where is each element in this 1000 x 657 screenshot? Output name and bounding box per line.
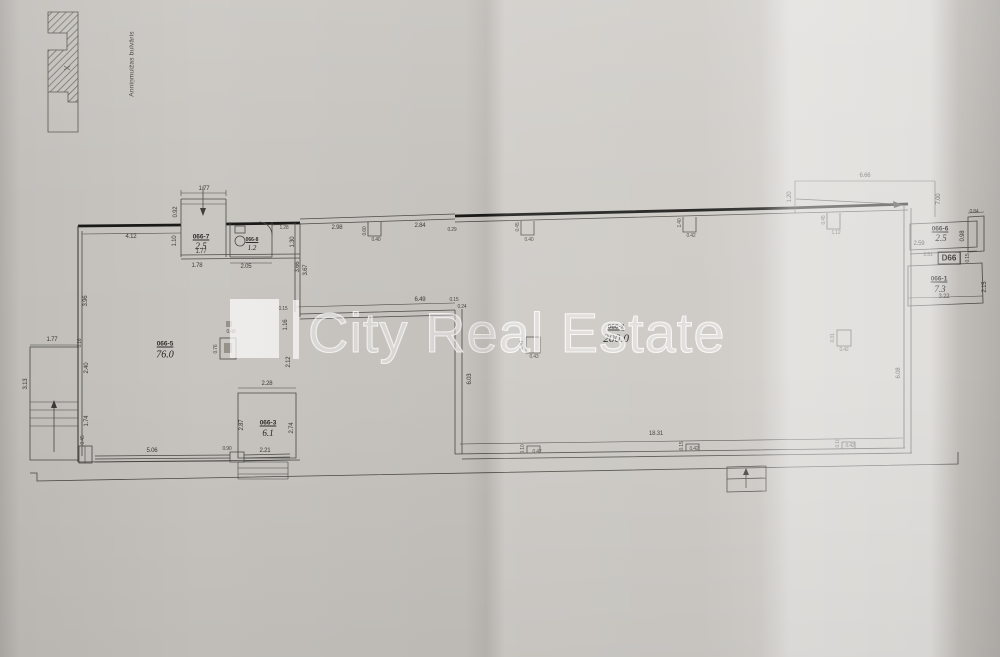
room-area-label: 7.3 <box>934 284 945 294</box>
dim-label: 1.40 <box>677 219 683 228</box>
dim-label: 0.42 <box>533 449 542 455</box>
street-name-label: Anniņmuižas bulvāris <box>129 31 136 96</box>
dim-label: 3.66 <box>295 262 301 273</box>
dim-label: 0.45 <box>515 223 521 232</box>
dim-label: 0.84 <box>970 209 979 215</box>
dim-label: 0.90 <box>223 446 232 452</box>
dim-label: 3.96 <box>83 296 89 307</box>
dim-label: 0.45 <box>80 436 86 445</box>
dim-label: 1.16 <box>283 320 289 331</box>
dim-label: 0.42 <box>846 443 855 449</box>
room-id-label: 066-7 <box>193 234 210 241</box>
dim-label: 0.60 <box>362 227 368 236</box>
dim-label: 1.20 <box>787 192 793 203</box>
dim-label: 0.15 <box>679 442 685 451</box>
room-area-label: 2.5 <box>935 233 946 243</box>
room-area-label: 1.2 <box>248 244 257 252</box>
wall-section-symbol <box>48 12 78 102</box>
dim-label: 0.10 <box>520 445 526 454</box>
dim-label: 2.15 <box>982 282 988 293</box>
dim-label: 2.84 <box>415 223 426 229</box>
dim-label: 1.10 <box>172 236 178 247</box>
dim-label: 5.06 <box>147 448 158 454</box>
dim-label: 6.66 <box>860 173 871 179</box>
watermark: City Real Estate <box>308 300 726 365</box>
dim-label: 1.78 <box>192 263 203 269</box>
dim-label: 18.31 <box>649 431 663 437</box>
dim-label: 1.30 <box>290 237 296 248</box>
room-id-label: 066-5 <box>157 341 174 348</box>
dim-label: 0.42 <box>690 446 699 452</box>
dim-label: 2.87 <box>239 420 245 431</box>
dim-label: 1.12 <box>832 230 841 236</box>
room-id-label: 066-8 <box>246 237 259 243</box>
dim-label: 2.74 <box>289 423 295 434</box>
dim-label: 0.29 <box>448 227 457 233</box>
dim-label: 2.05 <box>241 264 252 270</box>
dim-label: 0.40 <box>525 237 534 243</box>
dim-label: 0.42 <box>840 347 849 353</box>
watermark-logo-square <box>230 299 279 358</box>
dim-label: 0.15 <box>279 306 288 312</box>
dim-label: 1.77 <box>196 249 207 255</box>
room-id-label: 066-1 <box>931 276 948 283</box>
dim-label: 0.92 <box>173 207 179 218</box>
dim-label: 0.10 <box>835 439 841 448</box>
dim-label: 0.15 <box>965 254 971 263</box>
dim-label: 4.12 <box>126 234 137 240</box>
dim-label: 2.12 <box>286 357 292 368</box>
watermark-logo-bar <box>293 300 299 359</box>
room-id-label: 066-6 <box>932 226 949 233</box>
dim-label: 6.03 <box>467 374 473 385</box>
dim-label: 2.98 <box>332 225 343 231</box>
dim-label: 7.00 <box>936 194 942 205</box>
door-label: D66 <box>938 252 961 265</box>
dim-label: 1.77 <box>199 186 210 192</box>
dim-label: 2.51 <box>924 252 933 258</box>
dim-label: 1.77 <box>47 337 58 343</box>
photographed-floorplan: Anniņmuižas bulvāris 066-7 2.5 066-8 1.2… <box>0 0 1000 657</box>
room-id-label: 066-3 <box>260 420 277 427</box>
dim-label: 2.21 <box>260 448 271 454</box>
dim-label: 0.42 <box>687 233 696 239</box>
room-area-label: 6.1 <box>262 428 273 438</box>
dim-label: 2.40 <box>84 363 90 374</box>
dim-label: 0.76 <box>213 345 219 354</box>
dim-label: 3.22 <box>939 294 950 300</box>
dim-label: 1.28 <box>280 225 289 231</box>
dim-label: 0.31 <box>830 334 836 343</box>
dim-label: 0.40 <box>372 237 381 243</box>
dim-label: 3.67 <box>303 265 309 276</box>
dim-label: 3.13 <box>23 379 29 390</box>
dim-label: 0.45 <box>821 216 827 225</box>
dim-label: 0.16 <box>77 339 83 348</box>
dim-label: 0.98 <box>960 231 966 242</box>
dim-label: 6.08 <box>896 368 902 379</box>
dim-label: 2.59 <box>914 241 925 247</box>
room-area-label: 76.0 <box>156 350 174 361</box>
dim-label: 2.28 <box>262 381 273 387</box>
dim-label: 1.74 <box>84 416 90 427</box>
